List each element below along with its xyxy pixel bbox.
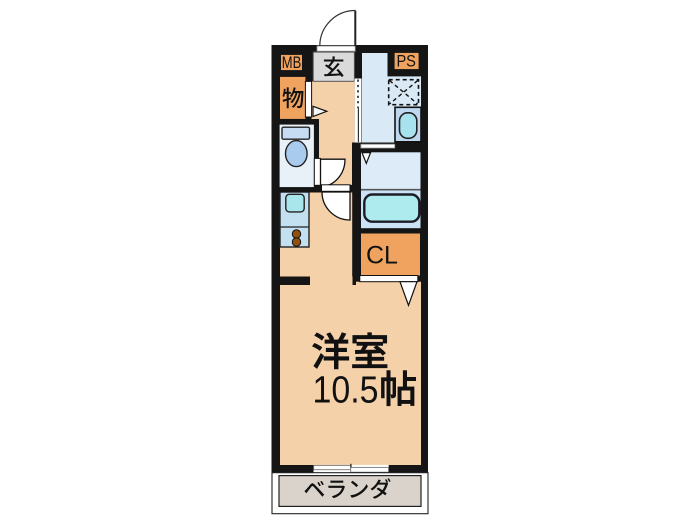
svg-text:10.5: 10.5: [313, 370, 379, 412]
svg-text:PS: PS: [396, 53, 416, 71]
svg-text:CL: CL: [366, 242, 398, 270]
svg-text:MB: MB: [282, 54, 302, 72]
